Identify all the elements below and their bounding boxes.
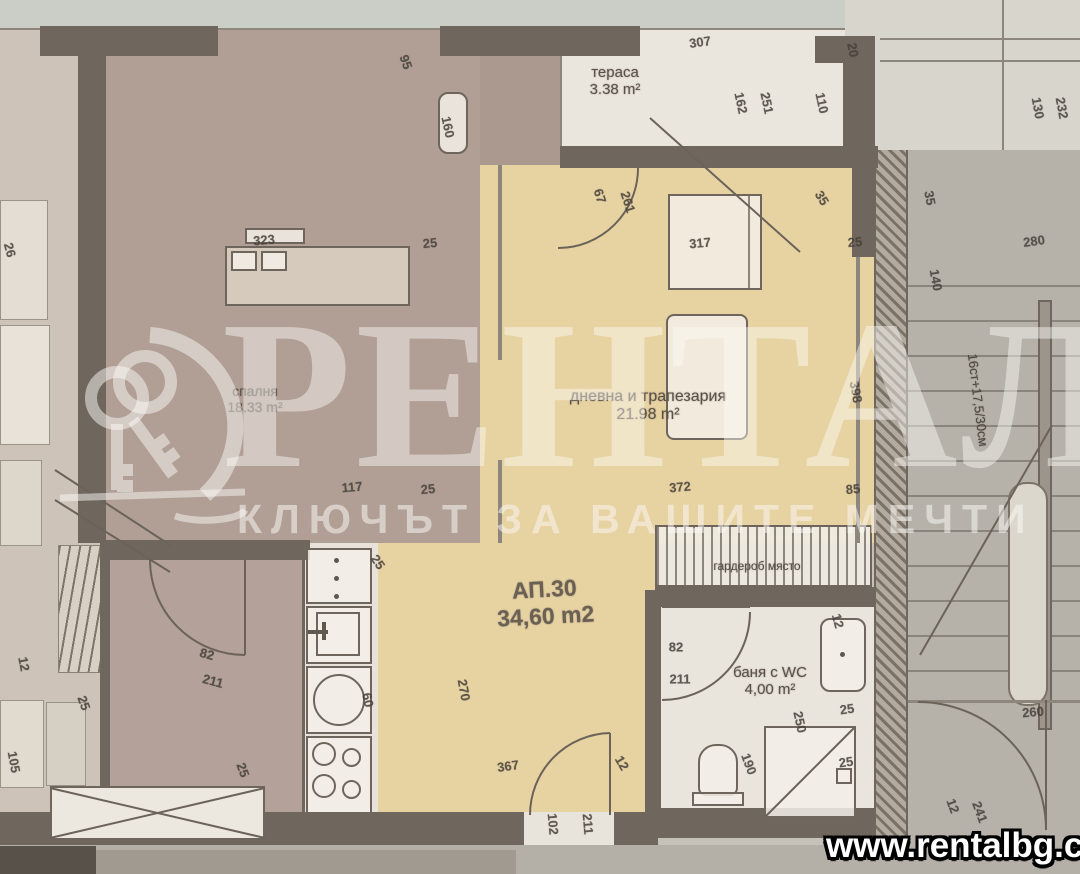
dimension-label: 82 [198, 645, 216, 663]
dimension-label: 160 [438, 115, 457, 139]
dimension-label: 67 [591, 187, 610, 205]
dimension-label: 250 [790, 710, 809, 734]
dimension-label: 25 [420, 481, 436, 497]
dimension-label: 105 [5, 750, 24, 774]
dimension-label: 35 [812, 188, 832, 208]
dimension-label: 85 [845, 481, 861, 497]
dimension-label: 25 [839, 701, 855, 718]
dimension-label: 251 [757, 91, 776, 115]
dimension-label: 102 [545, 813, 562, 836]
dimension-label: 82 [669, 640, 683, 655]
website-url: www.rentalbg.com [826, 826, 1080, 866]
dimension-label: 260 [1022, 704, 1045, 721]
dimension-label: 25 [838, 754, 854, 771]
dimension-label: 261 [618, 189, 639, 214]
dimension-label: 190 [738, 751, 760, 777]
dimension-label: 211 [201, 671, 225, 691]
dimension-label: 241 [969, 799, 991, 825]
dimension-label: 25 [74, 694, 93, 713]
dimension-label: 367 [496, 757, 520, 775]
dimension-label: 317 [689, 235, 712, 252]
dimension-label: 162 [731, 91, 750, 115]
dimension-label: 211 [580, 813, 597, 835]
dimension-label: 280 [1022, 232, 1046, 250]
dimension-label: 270 [455, 678, 474, 702]
dimension-label: 25 [368, 552, 389, 572]
dimension-label: 12 [829, 612, 847, 630]
dimension-label: 12 [15, 656, 32, 673]
dimension-label: 12 [612, 753, 632, 773]
dimension-label: 20 [844, 42, 861, 59]
dimension-label: 140 [927, 268, 946, 292]
dimension-layer: 3072016225111013023295160266726135353172… [0, 0, 1080, 874]
dimension-label: 95 [396, 53, 415, 72]
dimension-label: 398 [847, 380, 866, 404]
dimension-label: 117 [341, 479, 363, 496]
dimension-label: 25 [847, 234, 863, 250]
dimension-label: 25 [233, 761, 252, 780]
dimension-label: 211 [670, 672, 691, 687]
dimension-label: 323 [253, 232, 276, 249]
dimension-label: 25 [422, 235, 438, 251]
dimension-label: 12 [943, 797, 962, 816]
dimension-label: 26 [1, 241, 19, 259]
floor-plan-photo: тераса 3.38 m² спалня 18.33 m² дневна и … [0, 0, 1080, 874]
dimension-label: 130 [1029, 96, 1048, 120]
dimension-label: 35 [921, 190, 938, 207]
dimension-label: 232 [1053, 96, 1072, 120]
dimension-label: 372 [669, 479, 692, 496]
dimension-label: 110 [812, 91, 831, 115]
dimension-label: 60 [359, 692, 376, 709]
dimension-label: 307 [688, 33, 712, 51]
